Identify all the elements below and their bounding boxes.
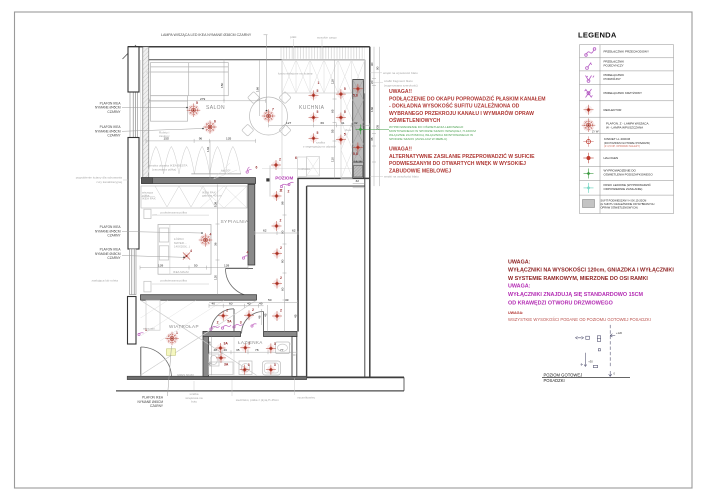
svg-text:5: 5 (317, 131, 319, 135)
svg-text:49: 49 (259, 302, 263, 306)
svg-text:PODWÓJNY: PODWÓJNY (604, 76, 621, 81)
svg-text:ŁAZIENKA: ŁAZIENKA (238, 340, 263, 345)
svg-text:buty: buty (191, 400, 197, 404)
svg-text:W - LAMPA WPUSZCZANA: W - LAMPA WPUSZCZANA (606, 126, 643, 130)
svg-text:2: 2 (226, 309, 228, 313)
svg-text:ODPOWIEDNIE ZASILANIE): ODPOWIEDNIE ZASILANIE) (604, 187, 643, 191)
svg-text:139: 139 (158, 263, 163, 267)
svg-text:(zasuwana półka): (zasuwana półka) (152, 168, 176, 172)
svg-text:gablota 40 cm: gablota 40 cm (202, 194, 222, 198)
svg-text:2: 2 (280, 309, 282, 313)
svg-text:2: 2 (217, 321, 219, 325)
svg-text:90: 90 (370, 62, 374, 66)
svg-text:z segregacją na odpady: z segregacją na odpady (303, 144, 336, 148)
svg-text:2: 2 (280, 219, 282, 223)
svg-text:35: 35 (208, 362, 212, 366)
svg-text:(sugerowana szerokość): (sugerowana szerokość) (384, 83, 418, 87)
svg-text:POSADZKI: POSADZKI (544, 378, 565, 383)
svg-text:WSZYSTKIE WYSOKOŚCI PODANE OD: WSZYSTKIE WYSOKOŚCI PODANE OD POZIOMU GO… (508, 317, 651, 322)
svg-text:146: 146 (206, 147, 210, 152)
svg-text:siedzisko; półka z płytą H-45c: siedzisko; półka z płytą H-45cm (236, 398, 280, 402)
svg-text:wysokie cargo: wysokie cargo (317, 36, 337, 40)
svg-text:+120: +120 (616, 331, 623, 335)
svg-text:110: 110 (331, 79, 335, 84)
svg-text:OŚWIETLENIA PODSZAFKOWEGO: OŚWIETLENIA PODSZAFKOWEGO (604, 172, 654, 177)
svg-text:wnęki na wysokości blatu: wnęki na wysokości blatu (384, 175, 419, 179)
svg-text:KUCHNIA: KUCHNIA (299, 105, 325, 111)
svg-text:3: 3 (248, 363, 250, 367)
svg-text:6: 6 (214, 120, 216, 124)
svg-text:279: 279 (200, 97, 205, 101)
svg-text:46: 46 (258, 315, 262, 319)
svg-text:UWAGA:: UWAGA: (508, 284, 531, 290)
svg-text:16,16: 16,16 (354, 160, 362, 164)
svg-text:4: 4 (247, 251, 249, 255)
svg-text:SUFIT PODWIESZANY H OK.15-20CM: SUFIT PODWIESZANY H OK.15-20CM (601, 199, 647, 203)
svg-text:SPODZIE SZAFKI (ZASILACZ W MEB: SPODZIE SZAFKI (ZASILACZ W MEBLU) (389, 137, 447, 141)
svg-text:40: 40 (247, 302, 251, 306)
svg-text:CZARNY: CZARNY (150, 404, 164, 408)
svg-text:CZARNY: CZARNY (107, 134, 121, 138)
svg-text:5A: 5A (227, 320, 232, 324)
svg-text:3: 3 (240, 321, 242, 325)
svg-text:6: 6 (256, 166, 258, 170)
svg-text:zlew: zlew (345, 128, 352, 132)
svg-text:120: 120 (214, 275, 218, 280)
svg-text:wnęki na wysokości blatu: wnęki na wysokości blatu (383, 71, 418, 75)
svg-text:110: 110 (331, 157, 335, 162)
svg-text:49: 49 (285, 298, 289, 302)
svg-text:140X200(...): 140X200(...) (174, 245, 190, 249)
svg-text:32: 32 (354, 121, 358, 125)
svg-text:3: 3 (274, 363, 276, 367)
svg-text:65: 65 (331, 109, 335, 113)
svg-text:40: 40 (212, 302, 216, 306)
svg-text:7: 7 (272, 108, 274, 112)
svg-text:2: 2 (281, 189, 283, 193)
svg-text:4: 4 (190, 249, 192, 253)
svg-text:20: 20 (370, 80, 374, 84)
svg-text:UWAGA!!: UWAGA!! (389, 147, 412, 153)
svg-text:WIATROŁAP: WIATROŁAP (169, 324, 199, 329)
svg-text:LEGENDA: LEGENDA (578, 31, 617, 40)
svg-text:1: 1 (176, 331, 178, 335)
svg-text:+30: +30 (588, 359, 593, 363)
svg-text:77: 77 (280, 348, 284, 352)
svg-text:90: 90 (281, 230, 285, 234)
svg-text:2: 2 (252, 308, 254, 312)
svg-text:36: 36 (214, 242, 218, 246)
svg-text:2: 2 (288, 190, 290, 194)
svg-text:WYBRANEGO PRZEKROJU KANAŁU I W: WYBRANEGO PRZEKROJU KANAŁU I WYMIARÓW OP… (389, 109, 534, 117)
svg-text:UWAGA:: UWAGA: (508, 311, 523, 315)
svg-text:41: 41 (341, 121, 345, 125)
svg-text:66: 66 (321, 121, 325, 125)
svg-text:5: 5 (317, 89, 319, 93)
svg-text:35: 35 (370, 137, 374, 141)
svg-text:lodówka: lodówka (299, 167, 311, 171)
svg-text:2: 2 (280, 246, 282, 250)
svg-text:- DOKŁADNA WYSOKOŚĆ SUFITU UZA: - DOKŁADNA WYSOKOŚĆ SUFITU UZALEŻNIONA O… (389, 102, 520, 110)
svg-text:5,8: 5,8 (353, 152, 358, 156)
svg-text:5: 5 (344, 132, 346, 136)
svg-text:166: 166 (256, 87, 260, 92)
svg-text:98: 98 (281, 201, 285, 205)
svg-text:3: 3 (274, 342, 276, 346)
svg-text:PODŁĄCZENIE DO OKAPU POPROWADZ: PODŁĄCZENIE DO OKAPU POPROWADZIĆ PŁASKIM… (389, 94, 546, 102)
svg-text:WYŁĄCZNIKI ZNAJDUJĄ SIĘ STANDA: WYŁĄCZNIKI ZNAJDUJĄ SIĘ STANDARDOWO 15CM (508, 292, 643, 298)
svg-text:CZARNY: CZARNY (107, 256, 121, 260)
svg-text:32: 32 (356, 179, 360, 183)
svg-text:96: 96 (199, 137, 203, 141)
svg-text:podwieszana półka: podwieszana półka (161, 278, 188, 282)
svg-text:150: 150 (220, 83, 224, 88)
svg-text:2: 2 (280, 276, 282, 280)
svg-text:62: 62 (263, 229, 267, 233)
svg-text:lustro wklejone na ścianę: lustro wklejone na ścianę (278, 72, 313, 76)
svg-text:zasłująca lub roleta: zasłująca lub roleta (92, 279, 119, 283)
svg-text:5: 5 (344, 87, 346, 91)
svg-text:108: 108 (214, 202, 218, 207)
svg-text:62: 62 (292, 229, 296, 233)
svg-text:60: 60 (281, 287, 285, 291)
svg-text:PRZEŁĄCZNIK PRZECHODOWY: PRZEŁĄCZNIK PRZECHODOWY (604, 49, 650, 53)
svg-text:W SYSTEMIE RAMKOWYM, MIERZONE: W SYSTEMIE RAMKOWYM, MIERZONE DO OSI RAM… (508, 276, 648, 282)
svg-text:5,8: 5,8 (353, 94, 358, 98)
svg-text:REFLEKTOR: REFLEKTOR (604, 108, 623, 112)
svg-text:ZABUDOWIE MEBLOWEJ: ZABUDOWIE MEBLOWEJ (389, 168, 451, 174)
svg-text:WYŁĄCZNIKI NA WYSOKOŚCI 120cm,: WYŁĄCZNIKI NA WYSOKOŚCI 120cm, GNIAZDKA … (508, 267, 674, 274)
svg-text:55: 55 (331, 129, 335, 133)
svg-text:podwieszana półka: podwieszana półka (161, 210, 188, 214)
svg-text:POJEDYNCZY: POJEDYNCZY (604, 64, 624, 68)
svg-text:45: 45 (264, 313, 268, 317)
svg-text:GRES 60x60: GRES 60x60 (177, 373, 194, 377)
svg-text:półki: półki (290, 35, 297, 39)
svg-text:rury kanalizacyjnej: rury kanalizacyjnej (97, 180, 123, 184)
svg-text:PRZEŁĄCZNIK KRZYŻOWY: PRZEŁĄCZNIK KRZYŻOWY (604, 90, 643, 95)
svg-text:5: 5 (196, 101, 198, 105)
svg-text:50: 50 (268, 298, 272, 302)
svg-text:90: 90 (376, 66, 380, 70)
svg-text:80: 80 (281, 259, 285, 263)
svg-text:IKEA PAX: IKEA PAX (142, 197, 156, 201)
svg-text:wieszaki: wieszaki (143, 327, 155, 331)
svg-text:60: 60 (229, 302, 233, 306)
svg-text:OD KRAWĘDZI OTWORU DRZWIOWEGO: OD KRAWĘDZI OTWORU DRZWIOWEGO (508, 300, 613, 306)
svg-text:SALON: SALON (206, 105, 225, 111)
svg-text:26: 26 (208, 341, 212, 345)
svg-text:45: 45 (294, 314, 298, 318)
svg-text:POZIOM: POZIOM (275, 176, 293, 181)
svg-text:UWAGA:: UWAGA: (508, 259, 531, 265)
svg-text:35: 35 (236, 348, 240, 352)
svg-text:78: 78 (255, 348, 259, 352)
svg-text:50: 50 (194, 263, 198, 267)
svg-text:135: 135 (226, 137, 231, 141)
svg-text:POZIOM GOTOWEJ: POZIOM GOTOWEJ (544, 372, 583, 377)
svg-text:136: 136 (370, 107, 374, 112)
svg-text:139: 139 (224, 263, 229, 267)
svg-text:KINKIET H- 200CM: KINKIET H- 200CM (604, 137, 631, 141)
svg-text:3A: 3A (224, 363, 229, 367)
svg-text:6: 6 (295, 156, 297, 160)
svg-text:LAMPA WISZĄCA LED IKEA NYMANE: LAMPA WISZĄCA LED IKEA NYMANE Ø38CM CZAR… (161, 33, 252, 37)
svg-text:4: 4 (210, 233, 212, 237)
svg-text:HALOGEN: HALOGEN (604, 156, 619, 160)
svg-text:OŚWIETLENIOWYCH: OŚWIETLENIOWYCH (389, 117, 441, 124)
svg-text:(DO POZIOMU GOTOWEJ POSADZKI): (DO POZIOMU GOTOWEJ POSADZKI) (604, 141, 650, 145)
svg-text:127: 127 (286, 121, 291, 125)
svg-text:PODWIESZANYM DO OTWARTYCH WNĘK: PODWIESZANYM DO OTWARTYCH WNĘK W WYSOKIE… (389, 161, 526, 167)
svg-text:3A: 3A (224, 342, 229, 346)
svg-text:ALTERNATYWNIE ZASILANIE PRZEPR: ALTERNATYWNIE ZASILANIE PRZEPROWADZIĆ W … (389, 152, 535, 160)
svg-text:CZARNY: CZARNY (107, 234, 121, 238)
svg-text:2: 2 (279, 158, 281, 162)
svg-text:1: 1 (318, 81, 320, 85)
svg-text:ręcznikowiec: ręcznikowiec (298, 396, 316, 400)
svg-text:Z°/ W°: Z°/ W° (592, 131, 599, 134)
svg-text:IKEA MALM: IKEA MALM (173, 270, 189, 274)
svg-text:zasłony: zasłony (159, 134, 170, 138)
svg-text:5: 5 (344, 110, 346, 114)
svg-text:CZARNY: CZARNY (107, 110, 121, 114)
svg-text:UWAGA!!: UWAGA!! (389, 89, 412, 95)
svg-text:SYPIALNIA: SYPIALNIA (221, 219, 249, 225)
